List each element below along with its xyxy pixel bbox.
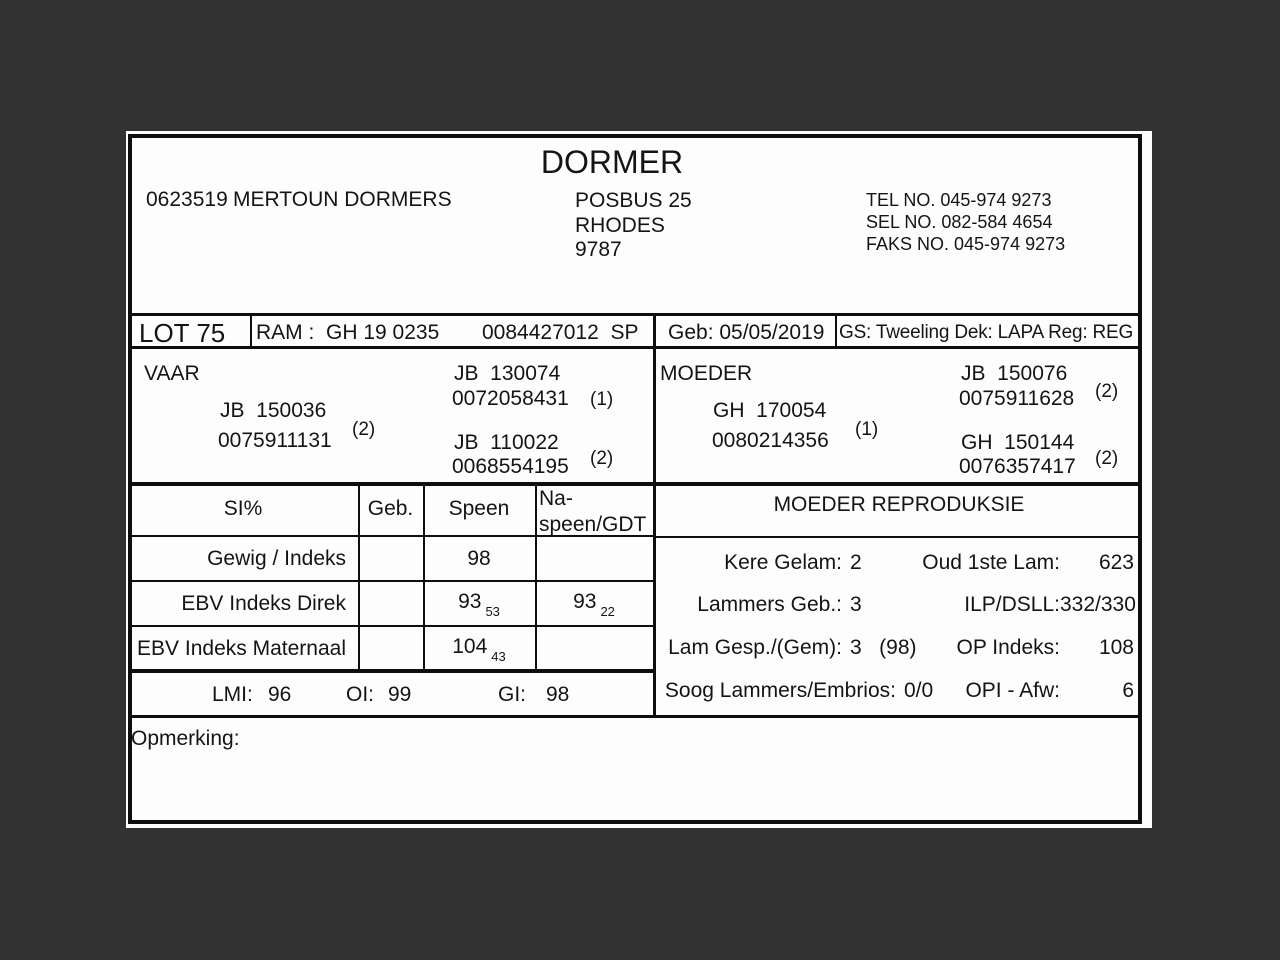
- vaar-sire-id: JB 130074: [454, 362, 560, 387]
- lmi-value: 96: [268, 683, 291, 708]
- birth-date: Geb: 05/05/2019: [668, 321, 824, 346]
- oi-value: 99: [388, 683, 411, 708]
- si-header-si: SI%: [128, 497, 358, 522]
- breeder-name: MERTOUN DORMERS: [233, 188, 452, 213]
- si-value: 98: [467, 547, 490, 572]
- address-line-2: RHODES: [575, 214, 665, 239]
- opmerking-label: Opmerking:: [131, 727, 240, 752]
- vaar-dam-id: JB 110022: [454, 431, 559, 456]
- si-cell-speen: 93 53: [423, 590, 535, 619]
- moeder-section-label: MOEDER: [660, 362, 752, 387]
- breed-title: DORMER: [126, 144, 1098, 182]
- lot-row-top-line: [128, 313, 1142, 316]
- si-value: 104: [452, 635, 487, 660]
- ram-id: RAM : GH 19 0235: [256, 321, 439, 346]
- faks-line: FAKS NO. 045-974 9273: [866, 234, 1065, 255]
- si-header-geb: Geb.: [358, 497, 423, 522]
- si-col-divider-3: [535, 482, 537, 673]
- repro-title: MOEDER REPRODUKSIE: [656, 493, 1142, 518]
- oi-label: OI:: [346, 683, 374, 708]
- si-table-bottom-line: [128, 669, 655, 673]
- repro-left-label: Lammers Geb.:: [656, 593, 842, 618]
- repro-right-label: OP Indeks:: [866, 636, 1060, 661]
- si-accuracy-sub: 53: [485, 604, 499, 619]
- si-row-label: EBV Indeks Maternaal: [128, 637, 346, 662]
- moeder-dam-note: (2): [1095, 448, 1118, 470]
- lot-divider-2: [835, 313, 837, 349]
- vaar-id: JB 150036: [220, 399, 326, 424]
- vaar-registration: 0075911131: [218, 429, 332, 454]
- repro-left-value: 3: [850, 593, 862, 618]
- breeder-number: 0623519: [146, 188, 228, 213]
- viewer-background: DORMER 0623519 MERTOUN DORMERS POSBUS 25…: [0, 0, 1280, 960]
- moeder-sire-note: (2): [1095, 381, 1118, 403]
- moeder-sire-registration: 0075911628: [959, 387, 1074, 412]
- vaar-sire-note: (1): [590, 389, 613, 411]
- vaar-section-label: VAAR: [144, 362, 200, 387]
- gs-info: GS: Tweeling Dek: LAPA Reg: REG: [839, 322, 1133, 344]
- moeder-dam-id: GH 150144: [961, 431, 1074, 456]
- si-row-line-2: [128, 625, 655, 627]
- document-page: DORMER 0623519 MERTOUN DORMERS POSBUS 25…: [126, 131, 1152, 828]
- vaar-dam-note: (2): [590, 448, 613, 470]
- section-bottom-line: [128, 715, 1142, 718]
- si-cell-speen: 104 43: [423, 635, 535, 664]
- moeder-dam-registration: 0076357417: [959, 455, 1076, 480]
- si-accuracy-sub: 43: [491, 649, 505, 664]
- lot-number: LOT 75: [139, 318, 225, 349]
- vaar-dam-registration: 0068554195: [452, 455, 569, 480]
- address-line-1: POSBUS 25: [575, 189, 692, 214]
- si-header-naspeen: Na-speen/GDT: [539, 486, 655, 538]
- moeder-registration: 0080214356: [712, 429, 829, 454]
- repro-left-label: Kere Gelam:: [656, 551, 842, 576]
- ram-registration: 0084427012 SP: [482, 321, 638, 346]
- si-value: 93: [458, 590, 481, 615]
- repro-right-label: Oud 1ste Lam:: [866, 551, 1060, 576]
- tel-line: TEL NO. 045-974 9273: [866, 190, 1051, 211]
- repro-left-label: Lam Gesp./(Gem):: [656, 636, 842, 661]
- si-row-label: Gewig / Indeks: [128, 547, 346, 572]
- gi-value: 98: [546, 683, 569, 708]
- si-accuracy-sub: 22: [600, 604, 614, 619]
- repro-right-value: 623: [1060, 551, 1134, 576]
- repro-right-label: ILP/DSLL:: [866, 593, 1060, 618]
- vaar-note: (2): [352, 419, 375, 441]
- si-header-speen: Speen: [423, 497, 535, 522]
- repro-right-value: 6: [1060, 679, 1134, 704]
- moeder-sire-id: JB 150076: [961, 362, 1067, 387]
- gi-label: GI:: [498, 683, 526, 708]
- moeder-note: (1): [855, 419, 878, 441]
- repro-title-underline: [656, 536, 1142, 538]
- repro-right-value: 108: [1060, 636, 1134, 661]
- si-cell-naspeen: 93 22: [535, 590, 653, 619]
- lot-divider-1: [250, 313, 252, 349]
- repro-right-value: 332/330: [1060, 593, 1134, 618]
- address-line-3: 9787: [575, 238, 622, 263]
- repro-left-label: Soog Lammers/Embrios:: [656, 679, 896, 704]
- si-cell-speen: 98: [423, 547, 535, 572]
- repro-left-value: 2: [850, 551, 862, 576]
- repro-right-label: OPI - Afw:: [866, 679, 1060, 704]
- si-row-label: EBV Indeks Direk: [128, 592, 346, 617]
- lmi-label: LMI:: [212, 683, 253, 708]
- si-value: 93: [573, 590, 596, 615]
- si-row-line-1: [128, 580, 655, 582]
- lot-row-bottom-line: [128, 346, 1142, 349]
- vaar-sire-registration: 0072058431: [452, 387, 569, 412]
- moeder-id: GH 170054: [713, 399, 826, 424]
- sel-line: SEL NO. 082-584 4654: [866, 212, 1052, 233]
